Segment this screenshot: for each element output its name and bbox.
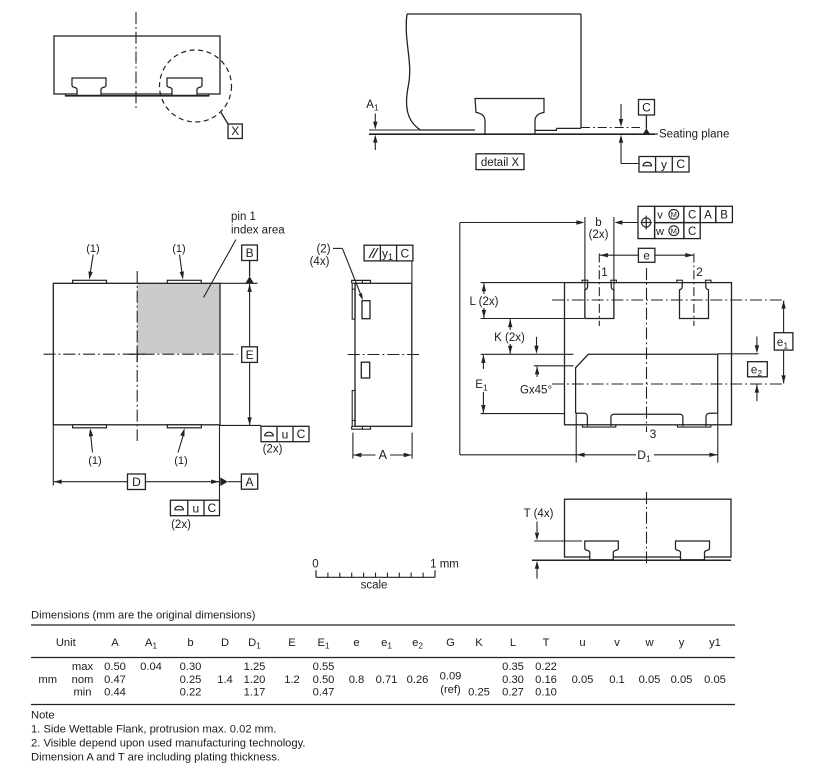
- svg-text:0.44: 0.44: [104, 687, 126, 699]
- svg-text:C: C: [688, 210, 696, 222]
- svg-text:0.04: 0.04: [140, 661, 162, 673]
- svg-text:pin 1: pin 1: [231, 211, 256, 223]
- svg-text:1 mm: 1 mm: [430, 559, 459, 571]
- svg-text:1: 1: [601, 265, 608, 279]
- svg-text:0.27: 0.27: [502, 687, 524, 699]
- svg-text:0.10: 0.10: [535, 687, 557, 699]
- svg-text:D: D: [132, 475, 141, 489]
- svg-text:Dimensions (mm are the origina: Dimensions (mm are the original dimensio…: [31, 610, 256, 622]
- svg-text:scale: scale: [361, 580, 388, 592]
- svg-text:L (2x): L (2x): [470, 296, 499, 308]
- svg-text:(1): (1): [174, 455, 187, 467]
- svg-text:w: w: [644, 637, 654, 649]
- svg-text:1.2: 1.2: [284, 674, 300, 686]
- svg-text:e: e: [353, 637, 359, 649]
- svg-text:e1: e1: [381, 637, 392, 651]
- svg-text:v: v: [614, 637, 620, 649]
- svg-text:Unit: Unit: [56, 637, 77, 649]
- svg-text:0.50: 0.50: [104, 661, 126, 673]
- svg-text:v: v: [657, 209, 663, 221]
- svg-text:2: 2: [696, 265, 703, 279]
- svg-text:y: y: [679, 637, 685, 649]
- svg-text:0.22: 0.22: [180, 687, 202, 699]
- svg-text:u: u: [282, 427, 289, 441]
- svg-text:b: b: [595, 217, 601, 229]
- svg-text:C: C: [400, 246, 409, 260]
- svg-text:(2x): (2x): [589, 229, 609, 241]
- svg-text:D1: D1: [248, 637, 261, 651]
- svg-text:(1): (1): [88, 455, 101, 467]
- svg-text:B: B: [246, 246, 254, 260]
- svg-text:0.05: 0.05: [572, 674, 594, 686]
- svg-text:(1): (1): [172, 243, 185, 255]
- svg-text:C: C: [297, 427, 306, 441]
- svg-text:0.25: 0.25: [468, 687, 490, 699]
- svg-text:T: T: [543, 637, 550, 649]
- svg-text:(2x): (2x): [263, 444, 283, 456]
- svg-text:y: y: [661, 158, 667, 172]
- svg-text:0: 0: [312, 559, 318, 571]
- svg-text:0.05: 0.05: [704, 674, 726, 686]
- svg-text:T (4x): T (4x): [524, 508, 554, 520]
- svg-text:Seating plane: Seating plane: [659, 129, 729, 141]
- svg-text:1.4: 1.4: [217, 674, 233, 686]
- svg-text:K: K: [475, 637, 483, 649]
- svg-text:u: u: [579, 637, 585, 649]
- svg-text:e2: e2: [412, 637, 423, 651]
- svg-text:2. Visible depend upon used ma: 2. Visible depend upon used manufacturin…: [31, 738, 306, 750]
- svg-text:(2): (2): [316, 244, 330, 256]
- svg-text:(2x): (2x): [171, 519, 191, 531]
- svg-text:e: e: [643, 250, 649, 262]
- svg-text:1.20: 1.20: [244, 674, 266, 686]
- svg-text:A: A: [111, 637, 119, 649]
- svg-text:E: E: [246, 348, 254, 362]
- svg-text:0.8: 0.8: [349, 674, 365, 686]
- svg-text:M: M: [671, 226, 677, 235]
- svg-text:A: A: [704, 210, 712, 222]
- svg-text:(1): (1): [86, 243, 99, 255]
- svg-text:0.35: 0.35: [502, 661, 524, 673]
- svg-text:1.25: 1.25: [244, 661, 266, 673]
- svg-text:0.47: 0.47: [104, 674, 126, 686]
- svg-text:E1: E1: [317, 637, 329, 651]
- svg-text:0.47: 0.47: [313, 687, 335, 699]
- svg-text:E1: E1: [475, 379, 488, 393]
- svg-text:0.30: 0.30: [502, 674, 524, 686]
- svg-text:(4x): (4x): [310, 256, 330, 268]
- svg-text:index area: index area: [231, 225, 285, 237]
- svg-text:y1: y1: [709, 637, 721, 649]
- svg-text:1.17: 1.17: [244, 687, 266, 699]
- svg-text:0.16: 0.16: [535, 674, 557, 686]
- svg-text:0.05: 0.05: [639, 674, 661, 686]
- svg-text:detail X: detail X: [481, 157, 520, 169]
- svg-text:X: X: [231, 124, 239, 138]
- svg-text:M: M: [671, 210, 677, 219]
- svg-text:E: E: [288, 637, 295, 649]
- svg-text:Gx45°: Gx45°: [520, 385, 552, 397]
- svg-text:0.09: 0.09: [440, 670, 462, 682]
- svg-text:nom: nom: [72, 674, 94, 686]
- svg-text:0.22: 0.22: [535, 661, 557, 673]
- svg-text:0.26: 0.26: [407, 674, 429, 686]
- svg-text:e2: e2: [751, 364, 762, 378]
- svg-text:mm: mm: [38, 674, 57, 686]
- svg-text:0.05: 0.05: [671, 674, 693, 686]
- svg-text:0.30: 0.30: [180, 661, 202, 673]
- svg-text:C: C: [676, 157, 685, 171]
- svg-text:D1: D1: [637, 448, 651, 464]
- svg-text:1. Side Wettable Flank, protru: 1. Side Wettable Flank, protrusion max. …: [31, 724, 276, 736]
- svg-text:G: G: [446, 637, 455, 649]
- svg-text:C: C: [642, 101, 651, 115]
- svg-text:L: L: [510, 637, 516, 649]
- svg-text:0.25: 0.25: [180, 674, 202, 686]
- svg-text:max: max: [72, 661, 94, 673]
- svg-text:A1: A1: [145, 637, 157, 651]
- svg-text:A: A: [379, 448, 388, 462]
- svg-text:A1: A1: [366, 99, 379, 113]
- svg-text:C: C: [688, 226, 696, 238]
- svg-text:w: w: [655, 226, 664, 238]
- svg-text:A: A: [245, 475, 253, 489]
- svg-text:(ref): (ref): [440, 684, 461, 696]
- svg-text:Dimension A and T are includin: Dimension A and T are including plating …: [31, 752, 280, 764]
- svg-text:Note: Note: [31, 710, 55, 722]
- svg-text:0.1: 0.1: [609, 674, 625, 686]
- svg-text:0.55: 0.55: [313, 661, 335, 673]
- svg-text:0.71: 0.71: [376, 674, 398, 686]
- svg-text:C: C: [207, 501, 216, 515]
- svg-text:u: u: [193, 501, 200, 515]
- svg-text:y1: y1: [382, 247, 393, 263]
- svg-text:0.50: 0.50: [313, 674, 335, 686]
- svg-text:b: b: [187, 637, 193, 649]
- svg-text:e1: e1: [777, 337, 788, 351]
- svg-text:D: D: [221, 637, 229, 649]
- svg-text:3: 3: [650, 427, 657, 441]
- svg-text:K (2x): K (2x): [494, 332, 525, 344]
- svg-text:min: min: [73, 687, 91, 699]
- svg-text:B: B: [720, 210, 728, 222]
